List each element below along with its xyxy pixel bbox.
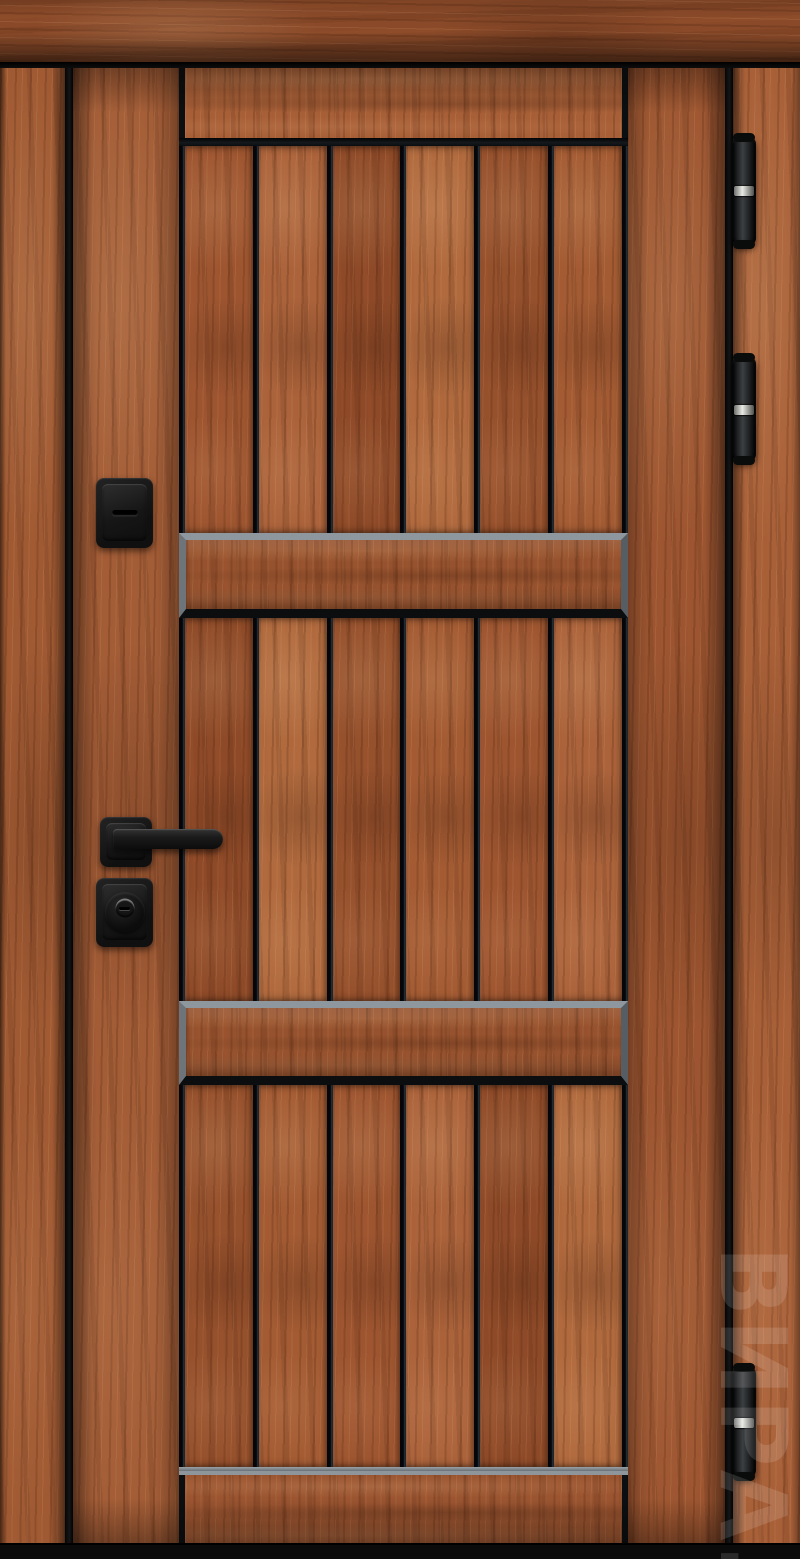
frame-header	[0, 0, 800, 62]
leaf-stile-left-shadow	[73, 68, 179, 1543]
cylinder-face	[105, 892, 145, 932]
threshold	[0, 1543, 800, 1559]
plank	[480, 618, 548, 1001]
cylinder-escutcheon-face	[102, 884, 147, 940]
plank	[480, 1085, 548, 1467]
plank	[406, 618, 474, 1001]
plank	[185, 146, 253, 533]
plank	[554, 618, 622, 1001]
plank	[333, 618, 401, 1001]
frame-jamb-left-shadow	[0, 68, 65, 1543]
thumbturn-slot	[112, 510, 138, 516]
leaf-bottom-rail	[179, 1471, 628, 1547]
deadbolt-escutcheon	[96, 478, 153, 548]
key-cylinder	[115, 899, 134, 918]
raised-band-lower	[179, 1001, 628, 1085]
left-reveal-gap	[65, 68, 73, 1543]
plank	[406, 146, 474, 533]
plank-groove	[622, 1085, 628, 1467]
plank	[185, 618, 253, 1001]
plank-groove	[622, 146, 628, 533]
plank-section-middle	[179, 618, 628, 1001]
lever-handle	[113, 829, 223, 849]
door-product-photo: ВИРА.	[0, 0, 800, 1559]
plank-section-lower	[179, 1085, 628, 1467]
plank	[554, 1085, 622, 1467]
plank	[259, 146, 327, 533]
plank-groove	[622, 618, 628, 1001]
deadbolt-escutcheon-face	[102, 484, 147, 541]
frame-header-shadow	[0, 0, 800, 62]
hinge-ring	[734, 186, 754, 196]
plank	[185, 1085, 253, 1467]
cylinder-escutcheon	[96, 878, 153, 947]
door-leaf	[73, 68, 725, 1543]
frame-jamb-left	[0, 68, 65, 1543]
leaf-top-rail	[179, 68, 628, 138]
hinge-ring	[734, 405, 754, 415]
photo-watermark: ВИРА.	[699, 1246, 800, 1559]
plank	[333, 146, 401, 533]
keyhole-slot	[119, 907, 130, 910]
hinge-middle	[732, 356, 756, 462]
plank	[554, 146, 622, 533]
plank	[406, 1085, 474, 1467]
leaf-stile-left	[73, 68, 179, 1543]
plank-section-upper	[179, 146, 628, 533]
plank	[259, 618, 327, 1001]
raised-band-sheen	[186, 1008, 621, 1076]
raised-band-upper	[179, 533, 628, 618]
raised-band-sheen	[186, 540, 621, 609]
plank	[333, 1085, 401, 1467]
hinge-top	[732, 136, 756, 246]
plank	[259, 1085, 327, 1467]
plank	[480, 146, 548, 533]
top-rail-groove	[179, 138, 628, 146]
